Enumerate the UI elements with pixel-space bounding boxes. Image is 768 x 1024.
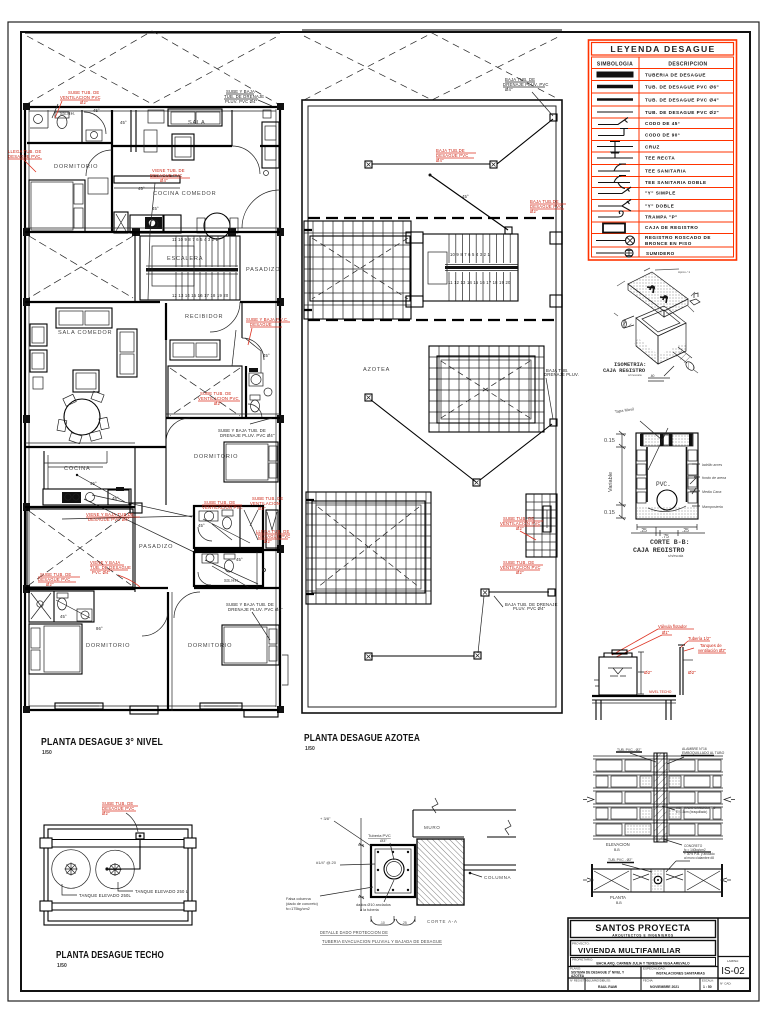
svg-text:TEE SANITARIA: TEE SANITARIA <box>645 169 687 174</box>
svg-text:s/n/escala: s/n/escala <box>628 373 642 377</box>
svg-text:ELEVACION: ELEVACION <box>606 842 630 847</box>
svg-text:Ø2": Ø2" <box>688 670 696 675</box>
svg-text:E=1.5cm (braquillado): E=1.5cm (braquillado) <box>676 810 707 814</box>
svg-text:SALA: SALA <box>188 120 206 126</box>
svg-text:.25: .25 <box>640 528 647 534</box>
svg-text:.25: .25 <box>682 528 689 534</box>
svg-text:DETALLE DADO PROTECCION DE: DETALLE DADO PROTECCION DE <box>320 930 388 935</box>
svg-text:Falsa columna: Falsa columna <box>286 897 312 901</box>
svg-text:(dado de concreto): (dado de concreto) <box>286 902 319 906</box>
svg-text:RECIBIDOR: RECIBIDOR <box>185 314 223 320</box>
svg-text:ESPECIALIDAD:: ESPECIALIDAD: <box>643 967 666 971</box>
svg-text:12 13 14 15 16 17 18 19 20: 12 13 14 15 16 17 18 19 20 <box>172 293 229 298</box>
svg-text:FECHA:: FECHA: <box>643 979 653 983</box>
svg-text:DORMITORIO: DORMITORIO <box>188 643 232 649</box>
svg-text:Aprox / 1: Aprox / 1 <box>678 270 690 274</box>
svg-text:45°: 45° <box>236 557 243 562</box>
svg-text:BRONCE EN PISO: BRONCE EN PISO <box>645 241 692 246</box>
svg-text:TANQUE ELEVADO 250 L: TANQUE ELEVADO 250 L <box>135 889 189 894</box>
svg-text:Media Cana: Media Cana <box>702 490 721 494</box>
svg-text:SIMBOLOGIA: SIMBOLOGIA <box>597 62 633 68</box>
svg-text:PROYECTO:: PROYECTO: <box>572 942 590 946</box>
svg-text:LEYENDA DESAGUE: LEYENDA DESAGUE <box>610 44 715 54</box>
svg-text:Ø2": Ø2" <box>644 670 652 675</box>
svg-text:11 10 9 8 7 6 5 4 3 2 1: 11 10 9 8 7 6 5 4 3 2 1 <box>172 237 219 242</box>
svg-text:INSTALACIONES SANITARIAS: INSTALACIONES SANITARIAS <box>656 972 706 976</box>
svg-text:ARQUITECTOS E INGENIEROS: ARQUITECTOS E INGENIEROS <box>612 934 673 938</box>
svg-text:fondo de arena: fondo de arena <box>702 476 726 480</box>
svg-text:PROPIETARIO:: PROPIETARIO: <box>572 958 593 962</box>
svg-text:AZOTEA: AZOTEA <box>363 367 390 373</box>
svg-text:45°: 45° <box>93 108 100 113</box>
svg-text:45°: 45° <box>60 614 67 619</box>
svg-text:45°: 45° <box>198 523 205 528</box>
svg-text:45°: 45° <box>462 194 469 199</box>
svg-text:TEE SANITARIA DOBLE: TEE SANITARIA DOBLE <box>645 180 707 185</box>
svg-text:TUBERIA DE DESAGUE: TUBERIA DE DESAGUE <box>645 73 706 78</box>
svg-text:CRUZ: CRUZ <box>645 145 660 150</box>
svg-text:TRAMPA "P": TRAMPA "P" <box>645 215 678 220</box>
svg-text:1/50: 1/50 <box>42 750 52 756</box>
svg-text:VENTILACION PVC: VENTILACION PVC <box>202 505 243 510</box>
svg-text:DORMITORIO: DORMITORIO <box>194 454 238 460</box>
svg-text:RAUL RAMI: RAUL RAMI <box>598 985 617 989</box>
svg-text:TEE RECTA: TEE RECTA <box>645 156 675 161</box>
svg-text:Ø4": Ø4" <box>160 178 168 183</box>
svg-text:Ø2": Ø2" <box>264 539 272 544</box>
svg-text:IS-02: IS-02 <box>721 966 744 977</box>
svg-text:DESAGUE: DESAGUE <box>250 322 272 327</box>
svg-text:"Y" DOBLE: "Y" DOBLE <box>645 204 674 209</box>
svg-text:DESAGUE PVC: DESAGUE PVC <box>8 154 40 159</box>
svg-text:s/n/escala: s/n/escala <box>668 554 683 558</box>
svg-text:Ø2": Ø2" <box>258 506 266 511</box>
svg-text:TUB. PVC - Ø2": TUB. PVC - Ø2" <box>608 858 633 862</box>
svg-text:.25: .25 <box>402 921 407 925</box>
svg-text:ESCALERA: ESCALERA <box>167 256 203 262</box>
svg-text:10 9 8 7 6 5 4 3 2 1: 10 9 8 7 6 5 4 3 2 1 <box>450 252 491 257</box>
svg-text:ladrillo acres: ladrillo acres <box>702 463 722 467</box>
svg-text:TUB. DE DESAGUE PVC Ø6": TUB. DE DESAGUE PVC Ø6" <box>645 85 719 90</box>
svg-text:VIVIENDA MULTIFAMILIAR: VIVIENDA MULTIFAMILIAR <box>578 946 681 955</box>
svg-text:B-B: B-B <box>616 901 622 905</box>
svg-text:.60: .60 <box>650 374 655 378</box>
svg-text:45°: 45° <box>90 481 97 486</box>
svg-text:ESCALA:: ESCALA: <box>702 979 714 983</box>
svg-text:Ø2": Ø2" <box>516 526 524 531</box>
svg-text:NOVIEMBRE 2021: NOVIEMBRE 2021 <box>650 985 679 989</box>
svg-text:#1/4" @.20: #1/4" @.20 <box>316 860 337 865</box>
svg-text:DESAGUE PVC: DESAGUE PVC <box>38 577 70 582</box>
svg-text:Ø2": Ø2" <box>46 582 54 587</box>
svg-text:"Y" SIMPLE: "Y" SIMPLE <box>645 191 676 196</box>
svg-text:Variable: Variable <box>608 472 614 492</box>
svg-text:Ø2": Ø2" <box>102 811 110 816</box>
svg-text:MURO: MURO <box>424 825 440 830</box>
svg-text:PVC.: PVC. <box>656 481 671 488</box>
svg-text:DRENAJE PLUV. PVC Ø4": DRENAJE PLUV. PVC Ø4" <box>228 607 283 612</box>
svg-text:Ø3": Ø3" <box>380 838 387 843</box>
svg-text:REGISTRO ROSCADO DE: REGISTRO ROSCADO DE <box>645 235 711 240</box>
svg-text:0.15: 0.15 <box>604 438 615 444</box>
svg-text:SS.HH.: SS.HH. <box>60 111 75 116</box>
svg-text:NIVEL TECHO: NIVEL TECHO <box>649 690 672 694</box>
svg-text:Ø2": Ø2" <box>516 570 524 575</box>
svg-text:Ø2": Ø2" <box>214 401 222 406</box>
svg-text:CAJA DE REGISTRO: CAJA DE REGISTRO <box>645 225 698 230</box>
svg-text:BACH.ARQ. CARMEN JULIA Y TERES: BACH.ARQ. CARMEN JULIA Y TERESHA VEGA AR… <box>596 962 690 966</box>
svg-text:CODO DE 90°: CODO DE 90° <box>645 133 680 138</box>
svg-text:COCINA COMEDOR: COCINA COMEDOR <box>153 191 216 197</box>
svg-text:Mamposteria: Mamposteria <box>702 505 723 509</box>
svg-text:PASADIZO: PASADIZO <box>246 267 280 273</box>
svg-text:Ø2": Ø2" <box>530 209 538 214</box>
svg-text:86°: 86° <box>96 626 103 631</box>
svg-text:TANQUE ELEVADO 250L: TANQUE ELEVADO 250L <box>79 893 132 898</box>
svg-text:ALUMNO/DIBUJO:: ALUMNO/DIBUJO: <box>587 979 611 983</box>
svg-text:DRENAJE PLUV. PVC Ø4": DRENAJE PLUV. PVC Ø4" <box>220 433 275 438</box>
svg-text:Válvula flotador: Válvula flotador <box>658 624 687 629</box>
svg-text:TUB. DE DESAGUE PVC Ø2": TUB. DE DESAGUE PVC Ø2" <box>645 110 719 115</box>
svg-text:CAJA REGISTRO: CAJA REGISTRO <box>633 547 684 554</box>
svg-text:al muro c/alambre #8: al muro c/alambre #8 <box>684 856 714 860</box>
svg-text:45°: 45° <box>152 206 159 211</box>
svg-text:DRENAJE PLUV.: DRENAJE PLUV. <box>544 372 579 377</box>
svg-text:45°: 45° <box>138 186 145 191</box>
svg-text:CODO DE 45°: CODO DE 45° <box>645 121 680 126</box>
svg-text:AZOTEA: AZOTEA <box>571 974 585 978</box>
svg-text:0.15: 0.15 <box>604 510 615 516</box>
svg-text:CORTE A-A: CORTE A-A <box>427 919 458 924</box>
svg-text:SANTOS PROYECTA: SANTOS PROYECTA <box>595 923 690 933</box>
svg-text:Tubería 1/2": Tubería 1/2" <box>688 636 711 641</box>
svg-text:Ø4": Ø4" <box>436 158 444 163</box>
svg-text:.10: .10 <box>380 921 385 925</box>
svg-text:fc=175kg/cm2: fc=175kg/cm2 <box>286 907 310 911</box>
svg-text:PLANTA DESAGUE 3° NIVEL: PLANTA DESAGUE 3° NIVEL <box>41 737 163 748</box>
svg-text:B-B: B-B <box>614 848 620 852</box>
svg-text:Ø1": Ø1" <box>662 630 670 635</box>
svg-text:45°: 45° <box>120 120 127 125</box>
svg-text:SUMIDERO: SUMIDERO <box>646 251 675 256</box>
svg-text:COLUMNA: COLUMNA <box>484 875 512 880</box>
svg-text:+ 3/8": + 3/8" <box>320 816 331 821</box>
svg-text:1 : 50: 1 : 50 <box>703 985 712 989</box>
svg-text:a la tuberia: a la tuberia <box>360 908 380 912</box>
svg-text:CORTE B-B:: CORTE B-B: <box>650 539 690 546</box>
svg-text:PLANTA: PLANTA <box>610 895 626 900</box>
svg-text:N° CAD:: N° CAD: <box>720 982 732 986</box>
svg-text:DORMITORIO: DORMITORIO <box>54 164 98 170</box>
svg-text:TUB. DE DESAGUE PVC Ø4": TUB. DE DESAGUE PVC Ø4" <box>645 98 719 103</box>
svg-text:LAMINA:: LAMINA: <box>727 959 739 963</box>
svg-text:PASADIZO: PASADIZO <box>139 544 173 550</box>
svg-text:Ø2": Ø2" <box>80 100 88 105</box>
svg-text:PLUV. PVC Ø4": PLUV. PVC Ø4" <box>225 99 258 104</box>
svg-text:SALA COMEDOR: SALA COMEDOR <box>58 330 112 336</box>
svg-text:1/50: 1/50 <box>57 963 67 969</box>
svg-text:1/50: 1/50 <box>305 746 315 752</box>
svg-text:PLANTA DESAGUE AZOTEA: PLANTA DESAGUE AZOTEA <box>304 733 420 744</box>
svg-text:ventilación Ø2": ventilación Ø2" <box>698 648 727 653</box>
svg-text:DESAGUE PVC: DESAGUE PVC <box>258 534 290 539</box>
svg-text:11 12 13 14 15 16 17 18 19 20: 11 12 13 14 15 16 17 18 19 20 <box>448 280 511 285</box>
svg-text:Ø4": Ø4" <box>505 87 513 92</box>
svg-text:EMBOQUILLADO AL TUBO: EMBOQUILLADO AL TUBO <box>682 751 725 755</box>
svg-text:DESAGUE PVC Ø4": DESAGUE PVC Ø4" <box>88 517 130 522</box>
svg-text:45°: 45° <box>263 353 270 358</box>
svg-text:TUBERIA EVACUACION PLUVIAL: TUBERIA EVACUACION PLUVIAL Y BAJADA DE D… <box>322 939 442 944</box>
svg-text:PVC Ø4": PVC Ø4" <box>92 570 111 575</box>
svg-text:DESCRIPCION: DESCRIPCION <box>668 62 707 68</box>
svg-text:PLUV. PVC Ø4": PLUV. PVC Ø4" <box>513 606 546 611</box>
svg-text:PLANTA DESAGUE TECHO: PLANTA DESAGUE TECHO <box>56 950 164 961</box>
svg-text:DORMITORIO: DORMITORIO <box>86 643 130 649</box>
